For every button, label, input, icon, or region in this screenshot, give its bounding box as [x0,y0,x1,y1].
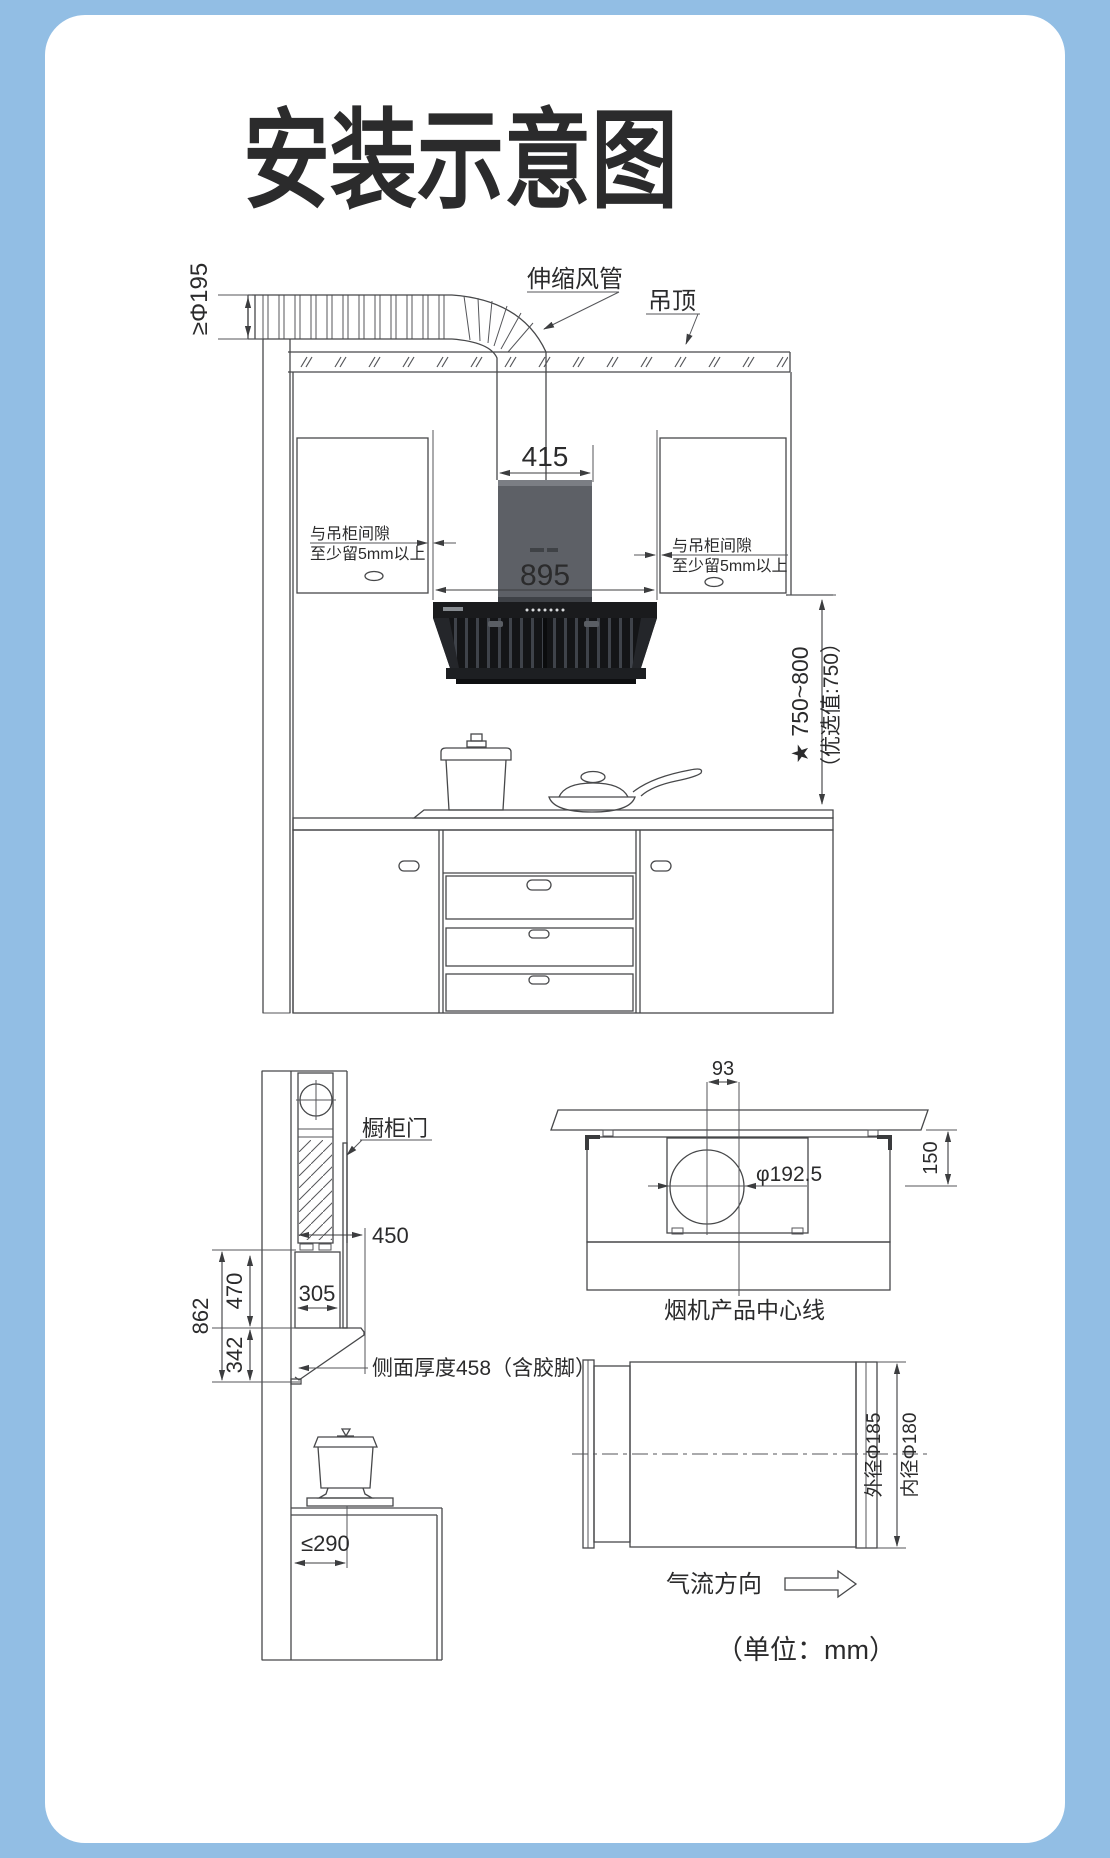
side-thickness-label: 侧面厚度458（含胶脚） [372,1357,596,1380]
right-gap-text-2: 至少留5mm以上 [672,557,788,575]
hood-logo [443,607,463,611]
stove-distance-value: ≤290 [301,1531,350,1556]
lower-height-value: 342 [222,1337,247,1374]
center-offset-value: 93 [712,1058,734,1080]
ceiling [288,352,790,372]
body-depth-value: 305 [299,1281,336,1306]
right-gap-text-1: 与吊柜间隙 [672,537,752,555]
cabinet-door-label: 橱柜门 [362,1116,428,1141]
chimney-width-value: 415 [522,441,569,472]
ceiling-label: 吊顶 [648,288,696,315]
telescopic-duct-label: 伸缩风管 [527,266,623,293]
product-centerline-label: 烟机产品中心线 [664,1297,825,1323]
install-height-value: ★ 750~800 [787,646,813,763]
left-gap-text-2: 至少留5mm以上 [310,545,426,563]
left-gap-text-1: 与吊柜间隙 [310,525,390,543]
hood-bottom-rim [446,668,646,679]
body-depth-dimension: 305 [298,1281,337,1308]
duct-diameter-label: ≥Φ195 [186,263,213,335]
top-depth-value: 450 [372,1223,409,1248]
hole-setback-value: 150 [920,1141,942,1174]
install-height-note: （优选值:750） [820,632,843,778]
body-height-value: 470 [222,1273,247,1310]
total-height-value: 862 [188,1298,213,1335]
unit-label: （单位：mm） [716,1635,896,1665]
outer-diameter-label: 外径Φ185 [863,1413,885,1498]
page: 安装示意图 ≥Φ195 伸缩风管 [0,0,1110,1858]
inner-diameter-label: 内径Φ180 [899,1413,921,1498]
installation-diagram: 安装示意图 ≥Φ195 伸缩风管 [0,0,1110,1858]
airflow-label: 气流方向 [666,1571,762,1598]
hole-diameter-value: φ192.5 [756,1163,822,1186]
page-title: 安装示意图 [243,100,678,221]
hood-width-value: 895 [520,559,570,592]
